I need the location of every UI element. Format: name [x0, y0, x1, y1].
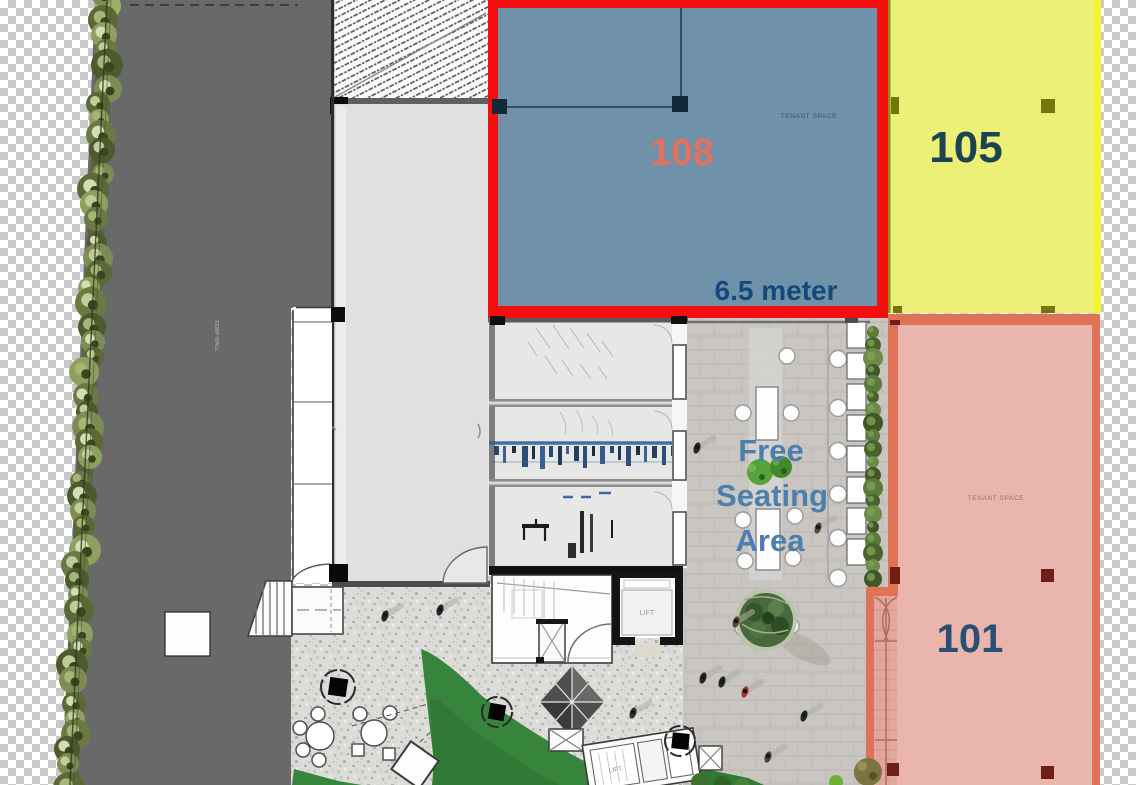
svg-text:101: 101	[937, 617, 1004, 661]
svg-text:Area: Area	[736, 523, 806, 558]
svg-text:TENANT SPACE: TENANT SPACE	[781, 113, 838, 120]
svg-text:TENANT SPACE: TENANT SPACE	[968, 495, 1025, 502]
svg-text:LIFT: LIFT	[640, 610, 655, 617]
svg-text:6.5 meter: 6.5 meter	[715, 275, 838, 306]
svg-text:Free: Free	[738, 433, 803, 468]
svg-text:TEMP WALL: TEMP WALL	[213, 320, 219, 351]
svg-text:108: 108	[650, 132, 713, 174]
svg-text:105: 105	[929, 123, 1002, 172]
svg-text:Seating: Seating	[716, 478, 828, 513]
